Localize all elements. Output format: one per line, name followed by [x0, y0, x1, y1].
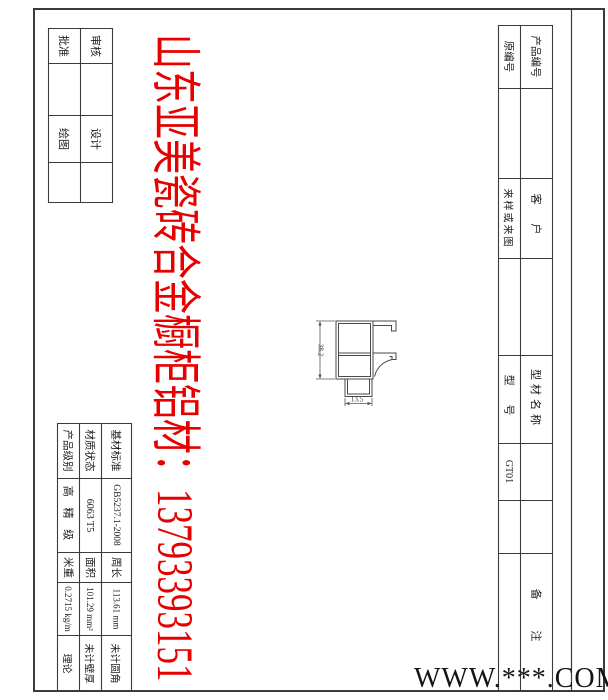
- check-label: 审核: [88, 35, 104, 57]
- original-no-label: 原编号: [502, 41, 517, 73]
- perimeter-value-cell: 113.61 mm: [101, 582, 131, 635]
- customer-label: 客 户: [528, 194, 544, 243]
- perimeter-note-cell: 未计圆角: [101, 635, 131, 691]
- product-grade-label-cell: 产品级别: [57, 423, 79, 478]
- perimeter-label-cell: 周长: [101, 552, 131, 582]
- profile-divider: [339, 353, 371, 356]
- meter-weight-label: 米重: [61, 557, 76, 578]
- perimeter-note: 未计圆角: [109, 643, 124, 683]
- product-grade-value: 高 精 级: [60, 486, 76, 545]
- area-value-cell: 101.29 mm²: [79, 582, 101, 635]
- perimeter-label: 周长: [109, 557, 124, 578]
- model-label: 型 号: [501, 375, 517, 424]
- meter-weight-note: 理论: [61, 653, 76, 673]
- model-cell: 型 号: [498, 355, 520, 443]
- approve-label: 批准: [56, 35, 72, 57]
- area-note-cell: 未计壁厚: [79, 635, 101, 691]
- meter-weight-value: 0.2715 kg/m: [63, 586, 73, 632]
- material-state-label-cell: 材质状态: [79, 423, 101, 478]
- design-label: 设计: [88, 128, 104, 150]
- profile-drawing: 38.2 13.5: [293, 298, 411, 416]
- sample-or-drawing-cell: 来样或来图: [498, 178, 520, 258]
- draw-label: 绘图: [56, 128, 72, 150]
- design-cell: 设计: [80, 115, 112, 162]
- sample-or-drawing-label: 来样或来图: [502, 188, 517, 248]
- meter-weight-note-cell: 理论: [57, 635, 79, 691]
- width-dim-arrow-left: [345, 402, 350, 405]
- base-standard-value-cell: GB5237.1-2008: [101, 478, 131, 552]
- profile-tube-inner: [339, 324, 371, 377]
- product-no-label: 产品编号: [529, 36, 544, 78]
- product-no-cell: 产品编号: [520, 25, 552, 88]
- product-grade-label: 产品级别: [61, 430, 76, 472]
- profile-flange: [373, 353, 396, 360]
- height-dim-arrow-top: [318, 321, 321, 326]
- base-standard-label: 基材标准: [109, 430, 124, 472]
- customer-cell: 客 户: [520, 178, 552, 258]
- drawing-sheet: 批准 审核 绘图 设计 产品级别 材质状态 基材标准 高 精 级 6063 T5…: [0, 0, 608, 700]
- profile-name-cell: 型材名称: [520, 355, 552, 443]
- profile-gusset-curve: [375, 360, 393, 377]
- profile-name-label: 型材名称: [528, 369, 544, 429]
- width-dim-text: 13.5: [351, 396, 364, 404]
- base-standard-value: GB5237.1-2008: [111, 484, 121, 546]
- site-watermark: WWW.***.COM: [414, 663, 608, 695]
- profile-bottom-ext-inner: [348, 379, 370, 394]
- material-state-value: 6063 T5: [85, 498, 96, 531]
- perimeter-value: 113.61 mm: [111, 588, 121, 629]
- model-value: GT01: [504, 460, 515, 483]
- width-dim-arrow-right: [368, 402, 373, 405]
- area-note: 未计壁厚: [83, 643, 98, 683]
- profile-tube-outer: [336, 321, 373, 379]
- draw-cell: 绘图: [48, 115, 80, 162]
- meter-weight-label-cell: 米重: [57, 552, 79, 582]
- original-no-cell: 原编号: [498, 25, 520, 88]
- area-value: 101.29 mm²: [85, 587, 95, 631]
- material-state-label: 材质状态: [83, 430, 98, 472]
- area-label: 面积: [83, 557, 98, 578]
- material-state-value-cell: 6063 T5: [79, 478, 101, 552]
- red-watermark-text: 山东亚美瓷砖合金橱柜铝材：13793393151: [149, 34, 200, 682]
- height-dim-arrow-bottom: [318, 375, 321, 380]
- remarks-label: 备 注: [528, 589, 544, 656]
- profile-top-arm-hook: [373, 321, 396, 331]
- meter-weight-value-cell: 0.2715 kg/m: [57, 582, 79, 635]
- product-grade-value-cell: 高 精 级: [57, 478, 79, 552]
- model-value-cell: GT01: [498, 443, 520, 500]
- base-standard-label-cell: 基材标准: [101, 423, 131, 478]
- height-dim-text: 38.2: [317, 344, 325, 357]
- area-label-cell: 面积: [79, 552, 101, 582]
- check-cell: 审核: [80, 28, 112, 63]
- approve-cell: 批准: [48, 28, 80, 63]
